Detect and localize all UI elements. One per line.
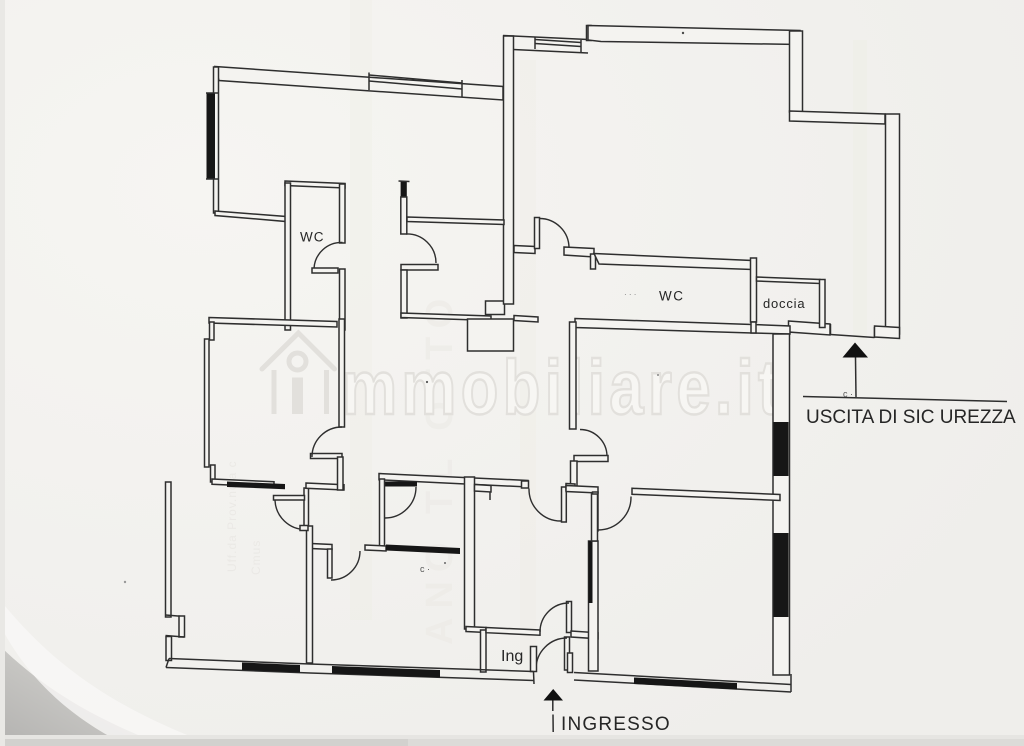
svg-text:USCITA DI SIC UREZZA: USCITA DI SIC UREZZA	[806, 407, 1016, 428]
svg-text:WC: WC	[659, 289, 685, 304]
svg-text:c ·: c ·	[843, 389, 853, 399]
svg-text:· · ·: · · ·	[624, 290, 636, 299]
svg-text:doccia: doccia	[763, 296, 805, 311]
svg-text:Uff.da Prov.ncia c: Uff.da Prov.ncia c	[225, 460, 239, 572]
svg-text:ANO TL OTTO: ANO TL OTTO	[419, 290, 461, 645]
svg-text:INGRESSO: INGRESSO	[561, 714, 671, 735]
svg-text:Ing: Ing	[501, 648, 523, 665]
svg-text:WC: WC	[300, 230, 325, 245]
svg-text:Cmus: Cmus	[249, 540, 263, 575]
svg-text:mmobiliare.it: mmobiliare.it	[342, 344, 783, 430]
svg-text:c ·: c ·	[420, 564, 430, 574]
